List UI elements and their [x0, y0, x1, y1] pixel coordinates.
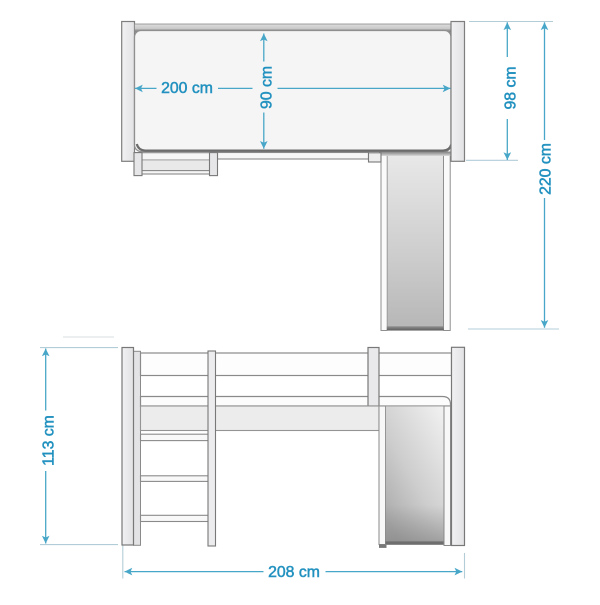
- svg-text:208 cm: 208 cm: [268, 564, 320, 581]
- svg-text:113 cm: 113 cm: [40, 415, 57, 466]
- svg-text:90 cm: 90 cm: [259, 66, 276, 109]
- svg-text:200 cm: 200 cm: [161, 80, 213, 97]
- svg-text:98 cm: 98 cm: [502, 66, 519, 109]
- svg-text:220 cm: 220 cm: [538, 143, 555, 195]
